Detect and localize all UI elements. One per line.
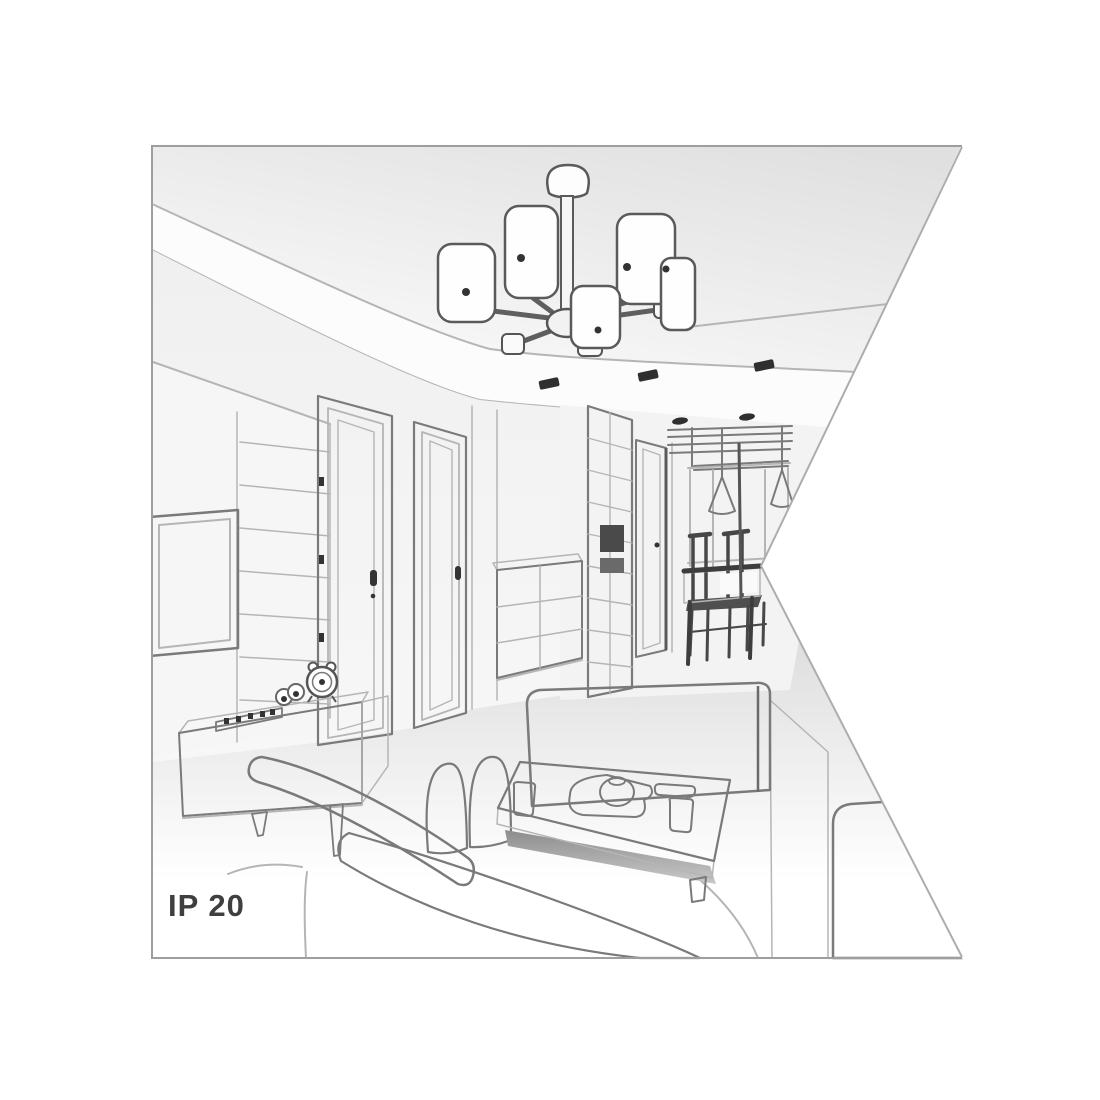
lamp-pole [739,443,741,600]
wardrobe-dark-pane [600,558,624,573]
cylinder-shade [571,286,620,348]
room-sketch [0,0,1100,1100]
alarm-clock [307,663,337,703]
door-handle-icon [455,566,461,580]
wardrobe-dark-pane [600,525,624,552]
shade-socket-dot [595,327,602,334]
chandelier-canopy [547,165,589,198]
ip-rating-label: IP 20 [168,888,245,924]
front-shade [571,286,620,348]
cylinder-shade [438,244,495,322]
cylinder-shade [505,206,558,298]
table-front-panel [720,571,757,595]
product-context-illustration: IP 20 [0,0,1100,1100]
door-keyhole-icon [371,594,376,599]
scene [150,144,963,960]
door-handle-icon [655,543,660,548]
door-handle-icon [370,570,377,586]
